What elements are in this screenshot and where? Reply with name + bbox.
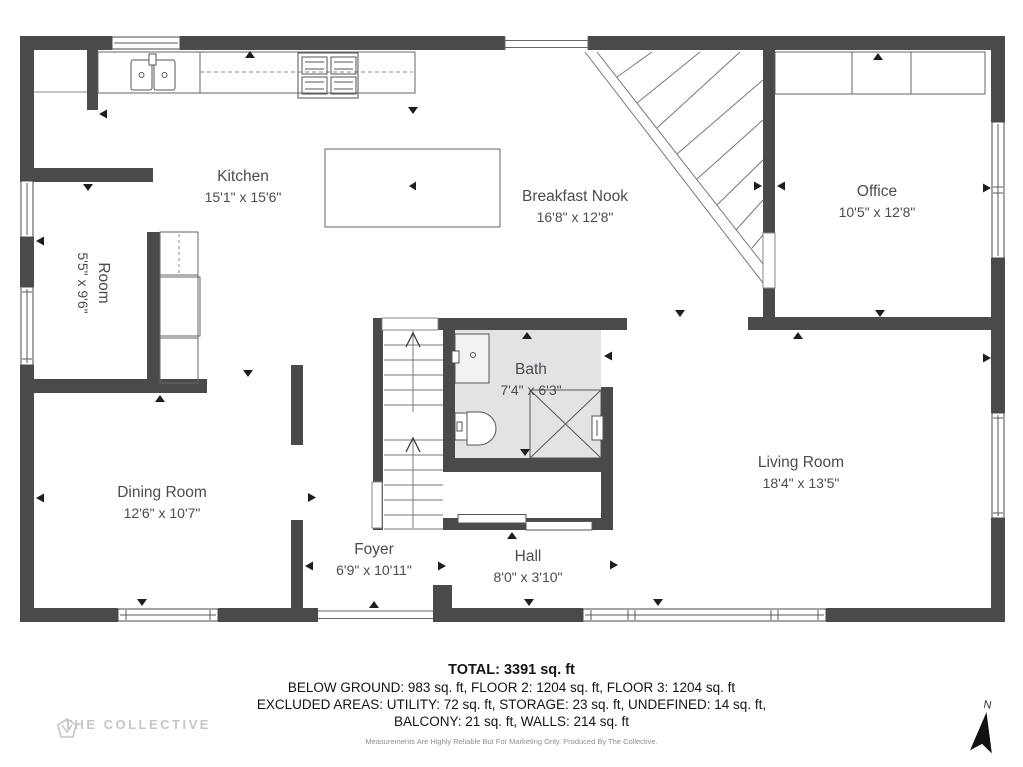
north-arrow-icon: N	[970, 698, 999, 754]
excluded-areas-text: EXCLUDED AREAS: UTILITY: 72 sq. ft, STOR…	[0, 696, 1023, 713]
central-staircase	[384, 330, 443, 529]
bath-vanity-icon	[452, 334, 489, 383]
room-label-breakfast-nook: Breakfast Nook 16'8" x 12'8"	[522, 187, 628, 227]
compass: N	[962, 690, 1007, 760]
winder-staircase	[585, 52, 763, 283]
kitchen-appliance-cabinets	[160, 232, 200, 383]
room-label-living-room: Living Room 18'4" x 13'5"	[758, 453, 844, 493]
compass-north-label: N	[983, 699, 993, 712]
room-label-room: Room 5'5" x 9'6"	[73, 252, 113, 313]
entry-threshold	[318, 611, 433, 619]
total-area-text: TOTAL: 3391 sq. ft	[0, 662, 1023, 679]
room-label-office: Office 10'5" x 12'8"	[839, 182, 916, 222]
room-label-kitchen: Kitchen 15'1" x 15'6"	[205, 167, 282, 207]
kitchen-sink-icon	[131, 54, 175, 90]
room-label-foyer: Foyer 6'9" x 10'11"	[336, 540, 412, 580]
room-label-bath: Bath 7'4" x 6'3"	[500, 360, 561, 400]
room-label-hall: Hall 8'0" x 3'10"	[494, 547, 563, 587]
disclaimer-text: Measurements Are Highly Reliable But For…	[0, 737, 1023, 746]
balcony-rail	[505, 37, 588, 50]
room-label-dining-room: Dining Room 12'6" x 10'7"	[117, 483, 207, 523]
floor-plan-page: Kitchen 15'1" x 15'6" Breakfast Nook 16'…	[0, 0, 1023, 767]
stove-icon	[298, 53, 358, 98]
floors-area-text: BELOW GROUND: 983 sq. ft, FLOOR 2: 1204 …	[0, 679, 1023, 696]
toilet-icon	[455, 412, 496, 445]
collective-logo-icon	[55, 717, 79, 741]
brand-logo-text: THE COLLECTIVE	[64, 717, 211, 732]
area-summary: TOTAL: 3391 sq. ft BELOW GROUND: 983 sq.…	[0, 662, 1023, 746]
brand-logo: THE COLLECTIVE	[55, 717, 211, 732]
shower-icon	[530, 390, 603, 458]
kitchen-island	[325, 149, 500, 227]
